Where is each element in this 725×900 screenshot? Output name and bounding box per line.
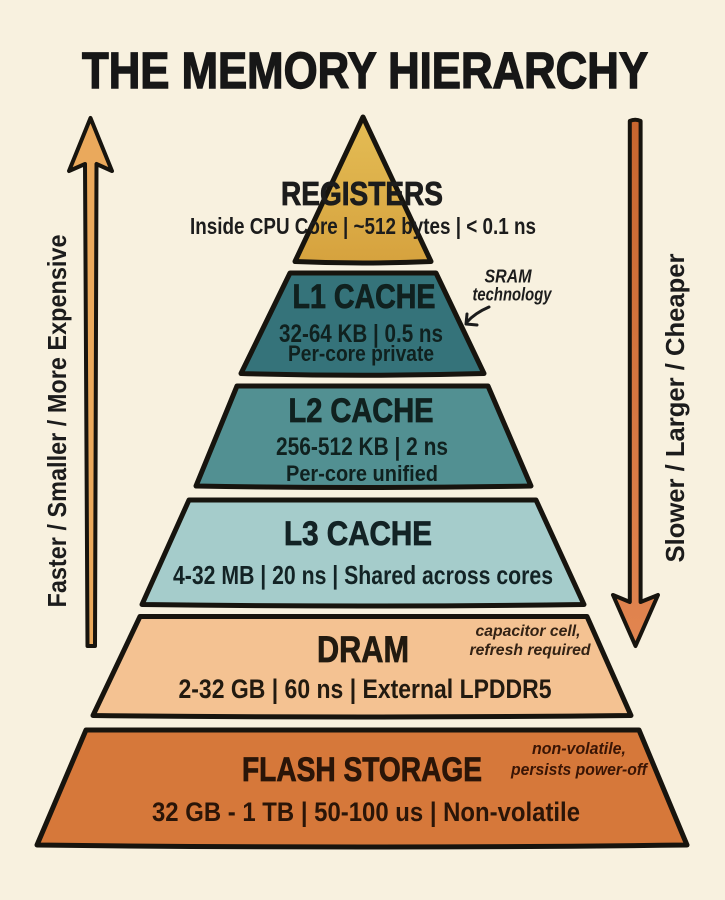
svg-text:L3 CACHE: L3 CACHE	[284, 515, 432, 553]
svg-text:L2 CACHE: L2 CACHE	[289, 392, 434, 430]
svg-text:persists power-off: persists power-off	[510, 760, 649, 779]
svg-text:REGISTERS: REGISTERS	[281, 175, 443, 212]
svg-text:Faster / Smaller / More Expens: Faster / Smaller / More Expensive	[42, 235, 72, 608]
svg-text:Slower / Larger / Cheaper: Slower / Larger / Cheaper	[660, 254, 690, 563]
svg-text:Inside CPU Core | ~512 bytes |: Inside CPU Core | ~512 bytes | < 0.1 ns	[190, 213, 536, 239]
svg-text:non-volatile,: non-volatile,	[532, 739, 626, 758]
svg-text:Per-core private: Per-core private	[288, 341, 434, 366]
svg-text:L1 CACHE: L1 CACHE	[293, 278, 436, 316]
svg-text:Per-core unified: Per-core unified	[286, 461, 438, 486]
svg-text:256-512 KB | 2 ns: 256-512 KB | 2 ns	[276, 433, 448, 461]
svg-text:refresh required: refresh required	[470, 642, 592, 659]
svg-text:4-32 MB | 20 ns | Shared acros: 4-32 MB | 20 ns | Shared across cores	[173, 560, 553, 590]
svg-text:SRAM: SRAM	[485, 267, 533, 287]
svg-text:technology: technology	[473, 285, 553, 305]
svg-text:capacitor cell,: capacitor cell,	[476, 623, 581, 640]
svg-text:32 GB - 1 TB | 50-100 us | Non: 32 GB - 1 TB | 50-100 us | Non-volatile	[152, 797, 580, 827]
svg-text:DRAM: DRAM	[317, 629, 409, 670]
svg-text:2-32 GB | 60 ns | External LPD: 2-32 GB | 60 ns | External LPDDR5	[179, 674, 552, 704]
svg-text:FLASH STORAGE: FLASH STORAGE	[242, 751, 482, 789]
svg-text:THE MEMORY HIERARCHY: THE MEMORY HIERARCHY	[82, 42, 648, 99]
